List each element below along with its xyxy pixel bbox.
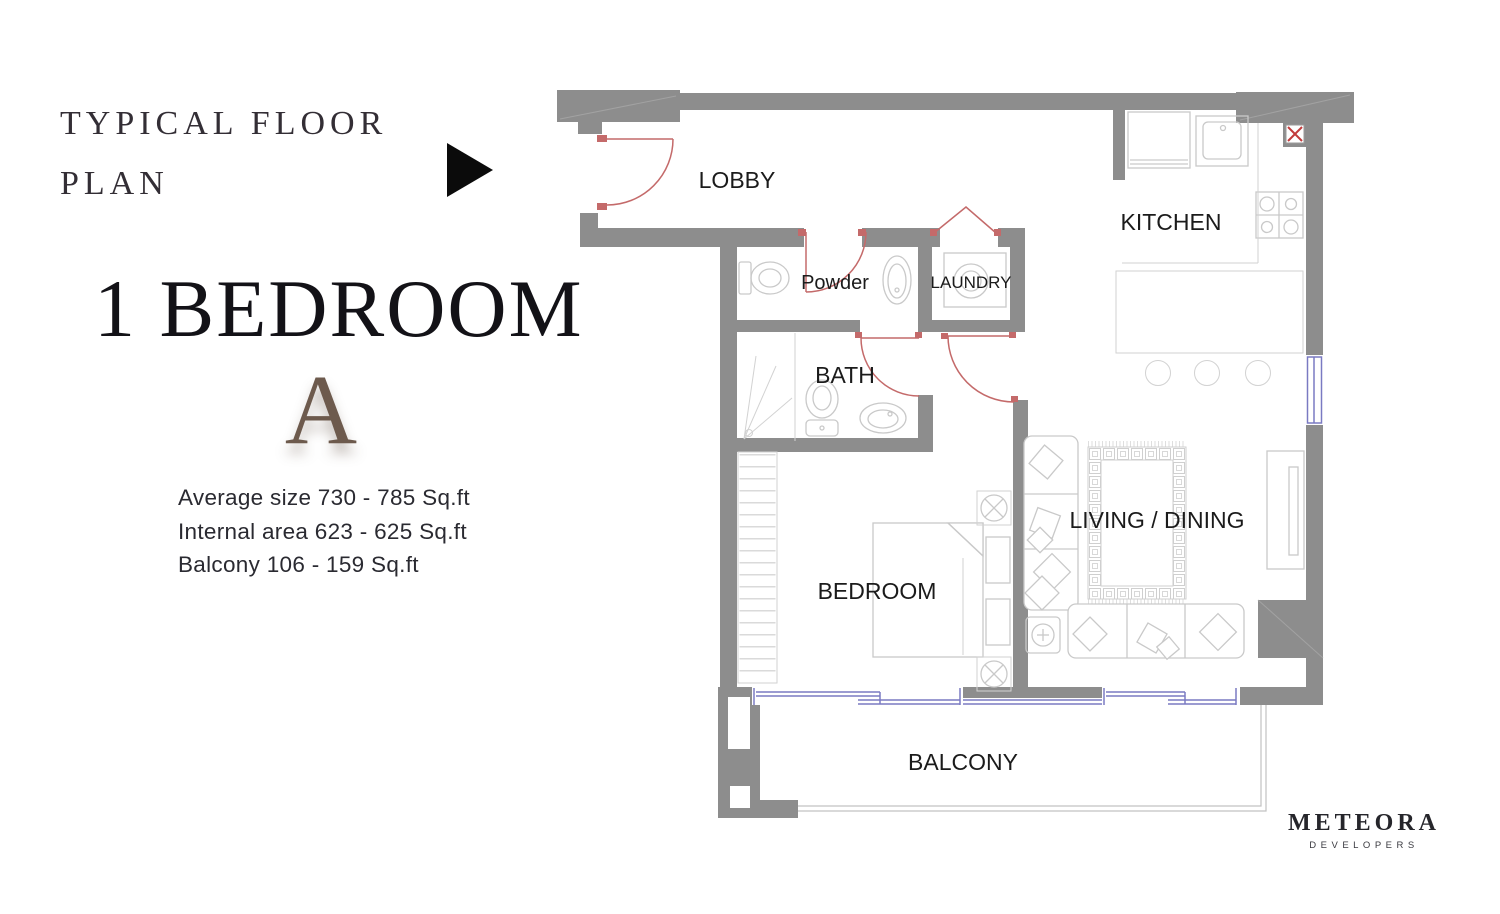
room-label-bath: BATH — [815, 362, 875, 388]
window — [1306, 355, 1323, 425]
entry-door-swing — [597, 135, 673, 210]
laundry-bifold-door — [930, 207, 1001, 236]
room-label-lobby: LOBBY — [699, 167, 776, 193]
logo-brand: METEORA — [1282, 810, 1446, 837]
kitchen-sink-icon — [1196, 116, 1248, 166]
column-block — [1258, 600, 1323, 658]
side-table — [1026, 617, 1060, 653]
stove-icon — [1256, 192, 1303, 238]
walls — [557, 90, 1354, 818]
floor-plan-drawing: LOBBY Powder LAUNDRY KITCHEN BATH BEDROO… — [0, 0, 1500, 914]
bath-sink-icon — [860, 403, 906, 433]
ceiling-fan-icon — [977, 657, 1011, 691]
room-label-kitchen: KITCHEN — [1121, 209, 1222, 235]
doors — [597, 135, 1018, 402]
kitchen-island — [1116, 271, 1303, 353]
room-labels: LOBBY Powder LAUNDRY KITCHEN BATH BEDROO… — [699, 167, 1245, 775]
fridge-icon — [1128, 112, 1190, 168]
shower-icon — [744, 333, 795, 441]
toilet-icon — [739, 262, 789, 294]
shaft-box — [1286, 125, 1304, 143]
room-label-living-dining: LIVING / DINING — [1069, 507, 1244, 533]
nightstand — [986, 599, 1010, 645]
balcony-outline — [798, 705, 1266, 811]
room-label-balcony: BALCONY — [908, 749, 1018, 775]
sofa — [1068, 604, 1244, 659]
developer-logo: METEORA DEVELOPERS — [1282, 810, 1446, 851]
logo-tagline: DEVELOPERS — [1282, 840, 1446, 851]
wardrobe — [738, 452, 777, 683]
tv-unit — [1267, 451, 1304, 569]
room-label-bedroom: BEDROOM — [818, 578, 937, 604]
room-label-laundry: LAUNDRY — [931, 273, 1012, 292]
sliding-door — [752, 687, 963, 705]
bedroom-furniture — [738, 452, 1011, 691]
floor-plan-page: TYPICAL FLOOR PLAN 1 BEDROOM A Average s… — [0, 0, 1500, 914]
powder-sink-icon — [883, 256, 911, 304]
bath-toilet-icon — [806, 380, 838, 436]
bar-stools — [1146, 361, 1271, 386]
ceiling-fan-icon — [977, 491, 1011, 525]
nightstand — [986, 537, 1010, 583]
living-door-swing — [941, 332, 1018, 402]
room-label-powder: Powder — [801, 272, 869, 294]
kitchen-fixtures — [1116, 112, 1303, 386]
